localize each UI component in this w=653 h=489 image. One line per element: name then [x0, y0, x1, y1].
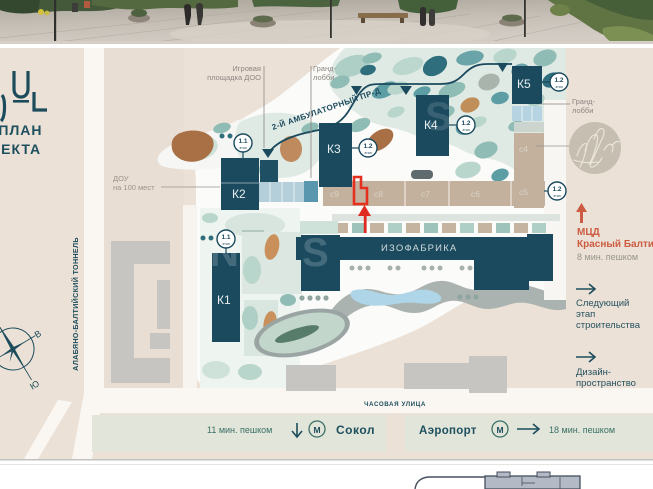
svg-text:на 100 мест: на 100 мест: [113, 183, 155, 192]
svg-text:М: М: [496, 425, 503, 435]
svg-text:площадка ДОО: площадка ДОО: [207, 73, 261, 82]
svg-text:Аэропорт: Аэропорт: [419, 425, 477, 437]
svg-text:ГЕНПЛАН: ГЕНПЛАН: [0, 122, 43, 138]
svg-text:этап: этап: [239, 146, 246, 150]
svg-text:ДОУ: ДОУ: [113, 174, 129, 183]
svg-text:ПРОЕКТА: ПРОЕКТА: [0, 141, 41, 157]
svg-text:М: М: [313, 425, 320, 435]
svg-text:ЧАСОВАЯ УЛИЦА: ЧАСОВАЯ УЛИЦА: [364, 401, 426, 408]
svg-text:К3: К3: [327, 142, 341, 156]
svg-text:Дизайн-: Дизайн-: [576, 367, 611, 378]
svg-text:ИЗОФАБРИКА: ИЗОФАБРИКА: [381, 243, 457, 254]
svg-text:с7: с7: [421, 189, 430, 199]
svg-text:этап: этап: [576, 309, 595, 320]
svg-text:Сокол: Сокол: [336, 423, 375, 437]
svg-text:18 мин. пешком: 18 мин. пешком: [549, 425, 615, 435]
svg-text:этап: этап: [462, 128, 469, 132]
svg-text:лобби: лобби: [313, 73, 334, 82]
svg-text:с9: с9: [330, 189, 339, 199]
svg-text:с4: с4: [519, 144, 528, 154]
svg-text:К5: К5: [517, 77, 531, 91]
svg-text:1.2: 1.2: [461, 120, 470, 127]
svg-text:1.2: 1.2: [554, 77, 563, 84]
svg-text:пространство: пространство: [576, 378, 636, 389]
svg-text:К2: К2: [232, 187, 246, 201]
svg-text:этап: этап: [364, 151, 371, 155]
svg-text:1.2: 1.2: [552, 186, 561, 193]
svg-text:Следующий: Следующий: [576, 298, 629, 309]
svg-text:с8: с8: [374, 189, 383, 199]
svg-text:этап: этап: [222, 242, 229, 246]
svg-text:1.1: 1.1: [221, 234, 230, 241]
svg-text:S: S: [425, 95, 452, 139]
svg-text:11 мин. пешком: 11 мин. пешком: [207, 425, 272, 435]
svg-text:1.1: 1.1: [238, 138, 247, 145]
svg-text:лобби: лобби: [572, 106, 593, 115]
svg-text:Красный Балти: Красный Балти: [577, 239, 653, 250]
svg-text:АЛАБЯНО-БАЛТИЙСКИЙ ТОННЕЛЬ: АЛАБЯНО-БАЛТИЙСКИЙ ТОННЕЛЬ: [71, 237, 80, 371]
svg-text:S: S: [302, 231, 329, 275]
svg-text:с6: с6: [471, 189, 480, 199]
svg-text:этап: этап: [555, 85, 562, 89]
svg-text:Гранд-: Гранд-: [313, 64, 337, 73]
svg-text:строительства: строительства: [576, 320, 641, 331]
svg-text:с5: с5: [519, 187, 528, 197]
svg-text:8 мин. пешком: 8 мин. пешком: [577, 252, 638, 262]
svg-text:1.2: 1.2: [363, 143, 372, 150]
svg-text:Гранд-: Гранд-: [572, 97, 596, 106]
svg-text:МЦД: МЦД: [577, 227, 600, 238]
svg-text:К1: К1: [217, 293, 231, 307]
svg-text:Игровая: Игровая: [232, 64, 261, 73]
svg-text:этап: этап: [553, 194, 560, 198]
